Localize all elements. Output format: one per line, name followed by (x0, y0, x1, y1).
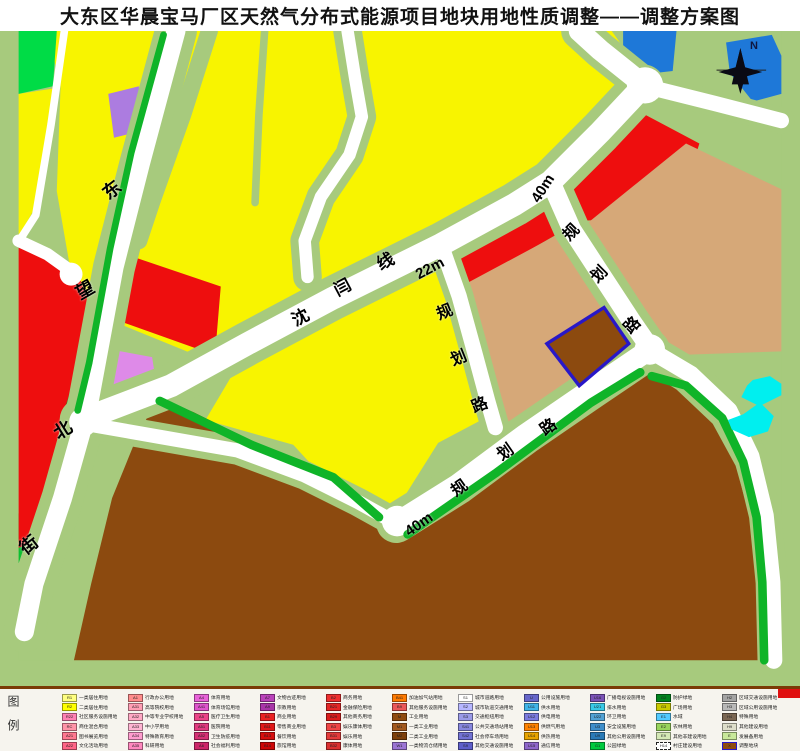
legend-entry-label: 金融保险用地 (343, 704, 372, 711)
legend-entry-label: 娱乐康体用地 (343, 723, 372, 730)
legend-entry: S9其他交通设施用地 (458, 741, 524, 751)
legend-color-chip: H4 (722, 713, 737, 721)
legend-color-chip: H3 (722, 703, 737, 711)
legend-entry: B9其他服务设施用地 (392, 703, 458, 713)
legend-entry: A31高等院校用地 (128, 703, 194, 713)
legend-entry-label: 城市轨道交通用地 (475, 704, 513, 711)
legend-color-chip: S9 (458, 742, 473, 750)
legend-entry-label: 康体用地 (343, 742, 362, 749)
legend-entry: G2防护绿地 (656, 693, 722, 703)
legend-entry-label: 科研用地 (145, 742, 164, 749)
legend-color-chip: S1 (458, 694, 473, 702)
legend-color-chip: U14 (524, 732, 539, 740)
legend-entry-label: 广场用地 (673, 704, 692, 711)
legend-entry-label: 医疗卫生用地 (211, 713, 240, 720)
legend-color-chip: S2 (458, 703, 473, 711)
legend-color-chip: W1 (392, 742, 407, 750)
legend-entry-label: 公园绿地 (607, 742, 626, 749)
legend-color-chip: A7 (260, 694, 275, 702)
legend-entry: U公用设施用地 (524, 693, 590, 703)
legend-color-chip: G3 (656, 703, 671, 711)
legend-entry: G1公园绿地 (590, 741, 656, 751)
legend-entry-label: 图书展览用地 (79, 733, 108, 740)
legend-entry-label: 其他服务设施用地 (409, 704, 447, 711)
legend-entry: S3交通枢纽用地 (458, 712, 524, 722)
legend-entry: S1城市道路用地 (458, 693, 524, 703)
legend-color-chip: M (392, 713, 407, 721)
legend-color-chip: B3 (326, 723, 341, 731)
legend-entry: G3广场用地 (656, 703, 722, 713)
legend-entry: H9其他建设用地 (722, 722, 788, 732)
legend-entry-label: 社会福利用地 (211, 742, 240, 749)
legend-entry-label: 社会停车场用地 (475, 733, 509, 740)
legend-color-chip: B14 (260, 742, 275, 750)
legend-panel: 图例 R1一类居住用地R2二类居住用地R22社区服务设施用地RC商住混合用地A2… (0, 686, 800, 751)
legend-entry: A7文物古迹用地 (260, 693, 326, 703)
legend-color-chip: S3 (458, 713, 473, 721)
legend-entry-label: 一类居住用地 (79, 694, 108, 701)
legend-entry: W1一类物流仓储用地 (392, 741, 458, 751)
legend-entry: U12供电用地 (524, 712, 590, 722)
legend-color-chip: U (524, 694, 539, 702)
legend-entry-label: 其他建设用地 (739, 723, 768, 730)
legend-entry: U9其他公用设施用地 (590, 731, 656, 741)
legend-entry: R2二类居住用地 (62, 703, 128, 713)
legend-color-chip: B1 (260, 713, 275, 721)
legend-entry-label: 卫生防疫用地 (211, 733, 240, 740)
legend-entry-label: 公共交通场站用地 (475, 723, 513, 730)
legend-color-chip: U21 (590, 703, 605, 711)
legend-entry: A22文化活动用地 (62, 741, 128, 751)
legend-color-chip: A21 (62, 732, 77, 740)
legend-entry: E9其他非建设用地 (656, 731, 722, 741)
plan-map-page: 大东区华晨宝马厂区天然气分布式能源项目地块用地性质调整——调整方案图 (0, 0, 800, 751)
legend-entry-label: 宗教用地 (277, 704, 296, 711)
legend-entry-label: 水域 (673, 713, 683, 720)
legend-entry: B14旅馆用地 (260, 741, 326, 751)
legend-color-chip: B29 (326, 713, 341, 721)
legend-entry: A52卫生防疫用地 (194, 731, 260, 741)
legend-entry: B29其他商务用地 (326, 712, 392, 722)
legend-entry-label: 区域交通设施用地 (739, 694, 777, 701)
legend-entry: U3安全设施用地 (590, 722, 656, 732)
legend-color-chip: U16 (590, 694, 605, 702)
legend-color-chip: RC (62, 723, 77, 731)
legend-entry: B13餐饮用地 (260, 731, 326, 741)
legend-entry: B32康体用地 (326, 741, 392, 751)
legend-entry-label: 旅馆用地 (277, 742, 296, 749)
legend-color-chip: G1 (590, 742, 605, 750)
legend-entry: B3娱乐康体用地 (326, 722, 392, 732)
map-canvas[interactable]: N 东望北街沈闫线22m40m规划路规划路40m规划路 (0, 31, 800, 686)
legend-entry-label: 其他商务用地 (343, 713, 372, 720)
legend-entry-label: 行政办公用地 (145, 694, 174, 701)
legend-color-chip: A22 (62, 742, 77, 750)
legend-color-chip: U13 (524, 723, 539, 731)
legend-color-chip: A31 (128, 703, 143, 711)
legend-entry: A6社会福利用地 (194, 741, 260, 751)
legend-entry: B1商业用地 (260, 712, 326, 722)
legend-entry-label: 交通枢纽用地 (475, 713, 504, 720)
legend-entry: U21排水用地 (590, 703, 656, 713)
legend-entry-label: 其他非建设用地 (673, 733, 707, 740)
legend-entry-label: 环卫用地 (607, 713, 626, 720)
legend-color-chip: U15 (524, 742, 539, 750)
legend-grid: R1一类居住用地R2二类居住用地R22社区服务设施用地RC商住混合用地A21图书… (62, 693, 788, 751)
legend-entry-label: 村庄建设用地 (673, 742, 702, 749)
legend-color-chip: U11 (524, 703, 539, 711)
legend-color-chip: B13 (260, 732, 275, 740)
legend-color-chip: R2 (62, 703, 77, 711)
parcel-green-topleft[interactable] (19, 31, 57, 94)
legend-entry-label: 文物古迹用地 (277, 694, 306, 701)
legend-color-chip: A4 (194, 694, 209, 702)
legend-entry-label: 特殊教育用地 (145, 733, 174, 740)
legend-entry-label: 工业用地 (409, 713, 428, 720)
legend-color-chip: A5 (194, 713, 209, 721)
legend-color-chip: G2 (656, 694, 671, 702)
legend-entry: U11供水用地 (524, 703, 590, 713)
legend-entry-label: 排水用地 (607, 704, 626, 711)
legend-entry: M2二类工业用地 (392, 731, 458, 741)
legend-entry-label: 二类工业用地 (409, 733, 438, 740)
legend-entry: H4特殊用地 (722, 712, 788, 722)
legend-entry-label: 中等专业学校用地 (145, 713, 183, 720)
legend-color-chip: A32 (128, 713, 143, 721)
legend-entry-label: 防护绿地 (673, 694, 692, 701)
legend-entry-label: 高等院校用地 (145, 704, 174, 711)
legend-entry: A9宗教用地 (260, 703, 326, 713)
legend-color-chip: A6 (194, 742, 209, 750)
legend-entry: U16广播电视设施用地 (590, 693, 656, 703)
legend-color-chip: E2 (656, 723, 671, 731)
legend-color-chip: B9 (392, 703, 407, 711)
legend-entry-label: 区域公用设施用地 (739, 704, 777, 711)
legend-entry-label: 商业用地 (277, 713, 296, 720)
legend-entry: A34特殊教育用地 (128, 731, 194, 741)
page-title: 大东区华晨宝马厂区天然气分布式能源项目地块用地性质调整——调整方案图 (60, 2, 740, 29)
legend-color-chip: A9 (260, 703, 275, 711)
legend-entry-label: 加油加气站用地 (409, 694, 443, 701)
legend-entry: B31娱乐用地 (326, 731, 392, 741)
legend-entry-label: 商住混合用地 (79, 723, 108, 730)
legend-color-chip: A41 (194, 703, 209, 711)
legend-entry: E发展备用地 (722, 731, 788, 741)
legend-entry: B11零售商业用地 (260, 722, 326, 732)
legend-entry: A4体育用地 (194, 693, 260, 703)
legend-entry: A21图书展览用地 (62, 731, 128, 741)
legend-entry: A35科研用地 (128, 741, 194, 751)
legend-entry-label: 供热用地 (541, 733, 560, 740)
north-label: N (750, 40, 758, 52)
legend-entry-label: 通信用地 (541, 742, 560, 749)
legend-entry: X调整地块 (722, 741, 788, 751)
legend-color-chip: R22 (62, 713, 77, 721)
title-bar: 大东区华晨宝马厂区天然气分布式能源项目地块用地性质调整——调整方案图 (0, 0, 800, 31)
legend-color-chip: B21 (326, 703, 341, 711)
legend-entry: A41体育场馆用地 (194, 703, 260, 713)
legend-entry-label: 一类工业用地 (409, 723, 438, 730)
legend-corner-mark (778, 689, 800, 698)
legend-entry-label: 中小学用地 (145, 723, 169, 730)
legend-entry: S41公共交通场站用地 (458, 722, 524, 732)
legend-color-chip: M1 (392, 723, 407, 731)
legend-entry-label: 体育用地 (211, 694, 230, 701)
legend-entry-label: 社区服务设施用地 (79, 713, 117, 720)
legend-title: 图例 (6, 695, 22, 747)
legend-color-chip: A33 (128, 723, 143, 731)
legend-entry-label: 供水用地 (541, 704, 560, 711)
legend-entry: M1一类工业用地 (392, 722, 458, 732)
legend-entry: A32中等专业学校用地 (128, 712, 194, 722)
legend-color-chip: H2 (722, 694, 737, 702)
legend-entry: B21金融保险用地 (326, 703, 392, 713)
legend-entry-label: 安全设施用地 (607, 723, 636, 730)
legend-color-chip: B2 (326, 694, 341, 702)
legend-entry-label: 其他公用设施用地 (607, 733, 645, 740)
legend-entry: S42社会停车场用地 (458, 731, 524, 741)
legend-entry: B2商务用地 (326, 693, 392, 703)
legend-color-chip: M2 (392, 732, 407, 740)
legend-color-chip: A51 (194, 723, 209, 731)
legend-entry: R22社区服务设施用地 (62, 712, 128, 722)
legend-entry-label: 体育场馆用地 (211, 704, 240, 711)
legend-entry: E1水域 (656, 712, 722, 722)
legend-color-chip: B32 (326, 742, 341, 750)
legend-entry-label: 娱乐用地 (343, 733, 362, 740)
land-use-map-svg (0, 31, 800, 686)
legend-color-chip: S41 (458, 723, 473, 731)
legend-entry-label: 广播电视设施用地 (607, 694, 645, 701)
legend-entry: U22环卫用地 (590, 712, 656, 722)
legend-color-chip: S42 (458, 732, 473, 740)
legend-entry: R1一类居住用地 (62, 693, 128, 703)
legend-entry-label: 其他交通设施用地 (475, 742, 513, 749)
legend-entry-label: 供电用地 (541, 713, 560, 720)
legend-entry: S2城市轨道交通用地 (458, 703, 524, 713)
legend-color-chip: B31 (326, 732, 341, 740)
legend-color-chip: E1 (656, 713, 671, 721)
legend-color-chip: R1 (62, 694, 77, 702)
legend-entry-label: 医院用地 (211, 723, 230, 730)
legend-color-chip: U3 (590, 723, 605, 731)
legend-entry: RC商住混合用地 (62, 722, 128, 732)
legend-color-chip: A1 (128, 694, 143, 702)
legend-entry-label: 商务用地 (343, 694, 362, 701)
legend-entry-label: 文化活动用地 (79, 742, 108, 749)
legend-entry-label: 公用设施用地 (541, 694, 570, 701)
legend-entry-label: 二类居住用地 (79, 704, 108, 711)
legend-entry-label: 一类物流仓储用地 (409, 742, 447, 749)
legend-color-chip: H14 (656, 742, 671, 750)
legend-color-chip: A35 (128, 742, 143, 750)
legend-entry: H3区域公用设施用地 (722, 703, 788, 713)
legend-entry: U15通信用地 (524, 741, 590, 751)
legend-entry-label: 城市道路用地 (475, 694, 504, 701)
legend-color-chip: A52 (194, 732, 209, 740)
legend-entry: M工业用地 (392, 712, 458, 722)
legend-color-chip: E (722, 732, 737, 740)
legend-entry: H14村庄建设用地 (656, 741, 722, 751)
legend-entry: A5医疗卫生用地 (194, 712, 260, 722)
legend-entry: U14供热用地 (524, 731, 590, 741)
legend-entry-label: 餐饮用地 (277, 733, 296, 740)
legend-entry-label: 零售商业用地 (277, 723, 306, 730)
legend-color-chip: U22 (590, 713, 605, 721)
legend-entry: A33中小学用地 (128, 722, 194, 732)
legend-color-chip: A34 (128, 732, 143, 740)
legend-color-chip: X (722, 742, 737, 750)
legend-entry: B41加油加气站用地 (392, 693, 458, 703)
legend-entry-label: 供燃气用地 (541, 723, 565, 730)
legend-color-chip: U9 (590, 732, 605, 740)
legend-entry: A1行政办公用地 (128, 693, 194, 703)
legend-entry: A51医院用地 (194, 722, 260, 732)
legend-color-chip: U12 (524, 713, 539, 721)
legend-entry: E2农林用地 (656, 722, 722, 732)
legend-entry-label: 农林用地 (673, 723, 692, 730)
legend-color-chip: B11 (260, 723, 275, 731)
legend-color-chip: B41 (392, 694, 407, 702)
legend-entry-label: 发展备用地 (739, 733, 763, 740)
legend-entry-label: 特殊用地 (739, 713, 758, 720)
legend-color-chip: E9 (656, 732, 671, 740)
legend-entry-label: 调整地块 (739, 742, 758, 749)
legend-color-chip: H9 (722, 723, 737, 731)
legend-entry: U13供燃气用地 (524, 722, 590, 732)
